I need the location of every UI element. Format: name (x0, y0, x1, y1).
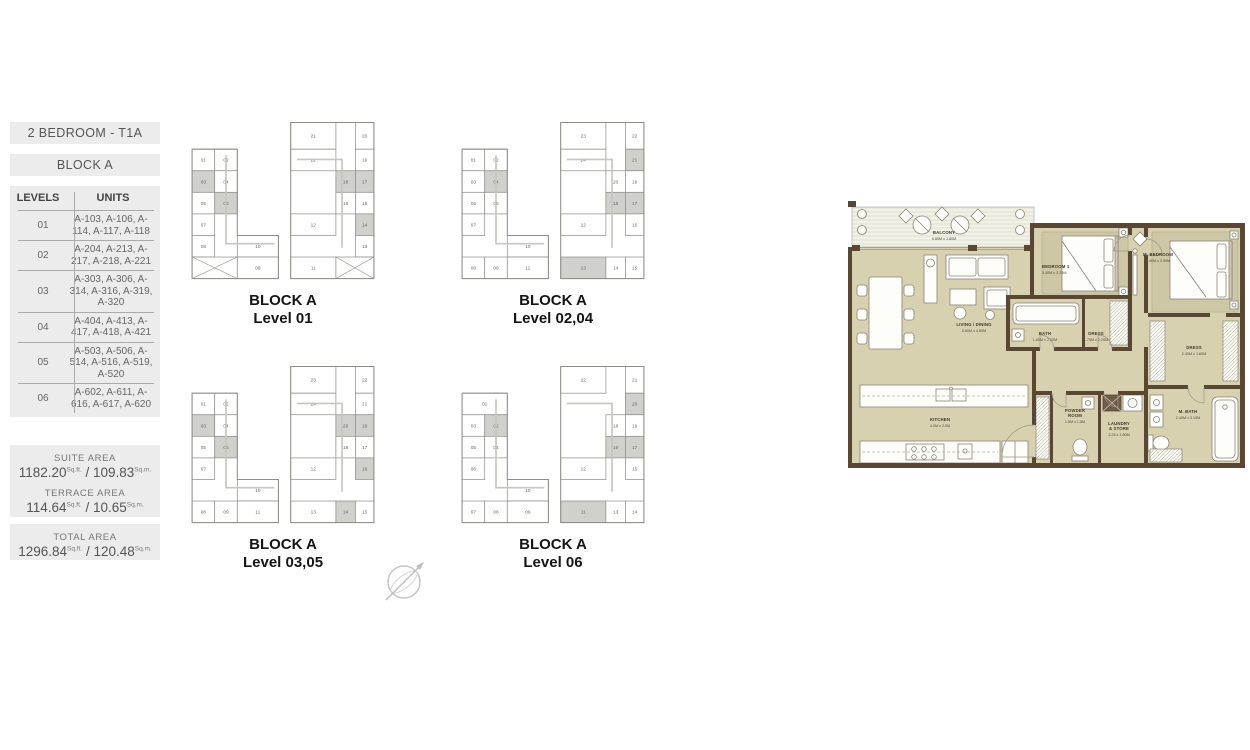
total-area-label: TOTAL AREA (10, 532, 160, 543)
svg-text:11: 11 (255, 510, 260, 516)
svg-text:& STORE: & STORE (1109, 426, 1129, 431)
svg-text:1.5M x 1.5M: 1.5M x 1.5M (1065, 420, 1085, 424)
keyplan-caption-01: BLOCK ALevel 01 (188, 292, 378, 328)
svg-text:22: 22 (311, 158, 317, 164)
terrace-area-label: TERRACE AREA (10, 488, 160, 499)
unit-type-title: 2 BEDROOM - T1A (10, 122, 160, 144)
svg-text:23: 23 (311, 378, 317, 384)
terrace-area-value: 114.64Sq.ft. / 10.65Sq.m. (10, 500, 160, 515)
svg-text:13: 13 (581, 266, 587, 272)
svg-text:05: 05 (201, 201, 207, 207)
svg-text:01: 01 (482, 402, 488, 408)
svg-text:09: 09 (525, 510, 531, 516)
svg-text:08: 08 (471, 266, 477, 272)
svg-text:20: 20 (362, 134, 368, 140)
column-divider (74, 192, 75, 413)
svg-text:24: 24 (311, 402, 317, 408)
svg-text:20: 20 (632, 402, 638, 408)
svg-text:M. BEDROOM: M. BEDROOM (1143, 252, 1173, 257)
keyplan-level-03-05: 0102030405060710080911232224212019181712… (188, 358, 378, 528)
master-bed (1170, 231, 1238, 309)
svg-text:17: 17 (362, 179, 368, 185)
svg-text:13: 13 (311, 510, 317, 516)
master-bath-shower (1150, 449, 1182, 462)
svg-text:15: 15 (362, 201, 368, 207)
svg-text:1.80M x 2.20M: 1.80M x 2.20M (1033, 338, 1057, 342)
suite-terrace-area-box: SUITE AREA 1182.20Sq.ft. / 109.83Sq.m. T… (10, 445, 160, 517)
svg-text:03: 03 (471, 423, 477, 429)
svg-text:22: 22 (581, 378, 587, 384)
svg-text:09: 09 (255, 266, 261, 272)
col-units: UNITS (66, 192, 160, 204)
svg-text:KITCHEN: KITCHEN (930, 417, 950, 422)
svg-text:3.40M x 3.90M: 3.40M x 3.90M (1146, 259, 1170, 263)
svg-text:18: 18 (613, 201, 619, 207)
svg-text:05: 05 (201, 445, 207, 451)
svg-text:08: 08 (201, 244, 207, 250)
table-row: 04A-404, A-413, A-417, A-418, A-421 (18, 312, 154, 342)
svg-text:11: 11 (311, 266, 316, 272)
svg-text:01: 01 (201, 402, 207, 408)
svg-text:15: 15 (632, 266, 638, 272)
svg-text:16: 16 (362, 466, 368, 472)
compass-icon (378, 556, 430, 608)
svg-text:ROOM: ROOM (1068, 413, 1082, 418)
keyplan-caption-02-04: BLOCK ALevel 02,04 (458, 292, 648, 328)
svg-text:14: 14 (613, 266, 619, 272)
svg-text:07: 07 (471, 510, 477, 516)
svg-text:12: 12 (311, 222, 317, 228)
svg-text:03: 03 (201, 179, 207, 185)
svg-text:10: 10 (525, 488, 531, 494)
svg-text:03: 03 (471, 179, 477, 185)
svg-text:2.25 x 1.80M: 2.25 x 1.80M (1108, 433, 1129, 437)
bedroom1-bed (1062, 228, 1128, 296)
svg-text:12: 12 (581, 466, 587, 472)
floorplan-2bedroom-t1a: BALCONY 5.80M x 1.80M LIVING / DINING 5.… (848, 198, 1245, 472)
svg-text:19: 19 (362, 423, 368, 429)
svg-text:21: 21 (311, 134, 317, 140)
svg-text:21: 21 (632, 158, 638, 164)
table-row: 03A-303, A-306, A-314, A-316, A-319, A-3… (18, 270, 154, 312)
block-title: BLOCK A (10, 154, 160, 176)
svg-text:12: 12 (581, 222, 587, 228)
svg-text:17: 17 (632, 201, 638, 207)
svg-text:01: 01 (201, 158, 207, 164)
svg-text:16: 16 (613, 445, 619, 451)
svg-text:BATH: BATH (1039, 331, 1051, 336)
keyplan-level-06: 0103020504061007080922212018191617151211… (458, 358, 648, 528)
svg-text:15: 15 (632, 466, 638, 472)
dining-set (857, 277, 914, 349)
keyplan-level-01: 0102030405060708100921202219181716151214… (188, 114, 378, 284)
table-header: LEVELS UNITS (10, 186, 160, 210)
svg-text:01: 01 (471, 158, 477, 164)
svg-text:10: 10 (525, 244, 531, 250)
svg-text:10: 10 (255, 244, 261, 250)
table-row: 01A-103, A-106, A-114, A-117, A-118 (18, 210, 154, 240)
svg-text:09: 09 (493, 266, 499, 272)
dress1-wardrobe (1110, 301, 1128, 345)
svg-text:5.80M x 1.80M: 5.80M x 1.80M (932, 237, 956, 241)
svg-text:18: 18 (343, 179, 349, 185)
table-row: 05A-503, A-506, A-514, A-516, A-519, A-5… (18, 342, 154, 384)
svg-text:14: 14 (632, 510, 638, 516)
hall-closet (1036, 397, 1049, 459)
svg-text:15: 15 (362, 510, 368, 516)
col-levels: LEVELS (10, 192, 66, 204)
svg-text:11: 11 (525, 266, 530, 272)
svg-text:2.40M x 3.10M: 2.40M x 3.10M (1176, 416, 1200, 420)
svg-text:18: 18 (613, 423, 619, 429)
svg-text:LIVING / DINING: LIVING / DINING (956, 322, 992, 327)
svg-text:22: 22 (362, 378, 368, 384)
svg-text:13: 13 (362, 244, 368, 250)
svg-text:BALCONY: BALCONY (933, 230, 955, 235)
svg-text:13: 13 (613, 510, 619, 516)
svg-text:20: 20 (343, 423, 349, 429)
svg-text:19: 19 (632, 179, 638, 185)
svg-text:2.40M x 1.60M: 2.40M x 1.60M (1182, 352, 1206, 356)
svg-text:14: 14 (362, 222, 368, 228)
table-body: 01A-103, A-106, A-114, A-117, A-11802A-2… (10, 210, 160, 413)
svg-text:4.0M x 2.0M: 4.0M x 2.0M (930, 424, 950, 428)
keyplan-caption-03-05: BLOCK ALevel 03,05 (188, 536, 378, 572)
total-area-box: TOTAL AREA 1296.84Sq.ft. / 120.48Sq.m. (10, 524, 160, 560)
keyplan-caption-06: BLOCK ALevel 06 (458, 536, 648, 572)
svg-text:09: 09 (223, 510, 229, 516)
svg-text:06: 06 (471, 466, 477, 472)
svg-text:05: 05 (471, 201, 477, 207)
svg-text:20: 20 (613, 179, 619, 185)
svg-text:07: 07 (201, 222, 207, 228)
svg-text:11: 11 (581, 510, 586, 516)
svg-text:08: 08 (493, 510, 499, 516)
svg-text:08: 08 (201, 510, 207, 516)
svg-text:05: 05 (471, 445, 477, 451)
svg-text:16: 16 (632, 222, 638, 228)
table-row: 06A-602, A-611, A-616, A-617, A-620 (18, 383, 154, 413)
svg-text:16: 16 (343, 201, 349, 207)
svg-text:DRESS: DRESS (1186, 345, 1202, 350)
svg-text:10: 10 (255, 488, 261, 494)
svg-text:M. BATH: M. BATH (1179, 409, 1198, 414)
svg-text:18: 18 (343, 445, 349, 451)
svg-text:1.70M x 2.20M: 1.70M x 2.20M (1084, 338, 1108, 342)
svg-text:03: 03 (201, 423, 207, 429)
svg-text:23: 23 (581, 134, 587, 140)
svg-text:DRESS: DRESS (1088, 331, 1104, 336)
svg-text:21: 21 (362, 402, 368, 408)
svg-text:14: 14 (343, 510, 349, 516)
total-area-value: 1296.84Sq.ft. / 120.48Sq.m. (10, 544, 160, 559)
svg-text:24: 24 (581, 158, 587, 164)
svg-text:BEDROOM 1: BEDROOM 1 (1042, 264, 1070, 269)
svg-text:19: 19 (632, 423, 638, 429)
table-row: 02A-204, A-213, A-217, A-218, A-221 (18, 240, 154, 270)
svg-text:5.80M x 4.60M: 5.80M x 4.60M (962, 329, 986, 333)
svg-text:22: 22 (632, 134, 638, 140)
suite-area-label: SUITE AREA (10, 453, 160, 464)
svg-text:3.40M x 3.20M: 3.40M x 3.20M (1042, 271, 1066, 275)
svg-text:07: 07 (471, 222, 477, 228)
svg-text:17: 17 (362, 445, 368, 451)
keyplan-level-02-04: 0102030405060710080911232224212019181712… (458, 114, 648, 284)
svg-text:19: 19 (362, 158, 368, 164)
svg-text:12: 12 (311, 466, 317, 472)
svg-text:07: 07 (201, 466, 207, 472)
suite-area-value: 1182.20Sq.ft. / 109.83Sq.m. (10, 465, 160, 480)
svg-text:21: 21 (632, 378, 638, 384)
svg-text:17: 17 (632, 445, 638, 451)
levels-units-table: LEVELS UNITS 01A-103, A-106, A-114, A-11… (10, 186, 160, 417)
